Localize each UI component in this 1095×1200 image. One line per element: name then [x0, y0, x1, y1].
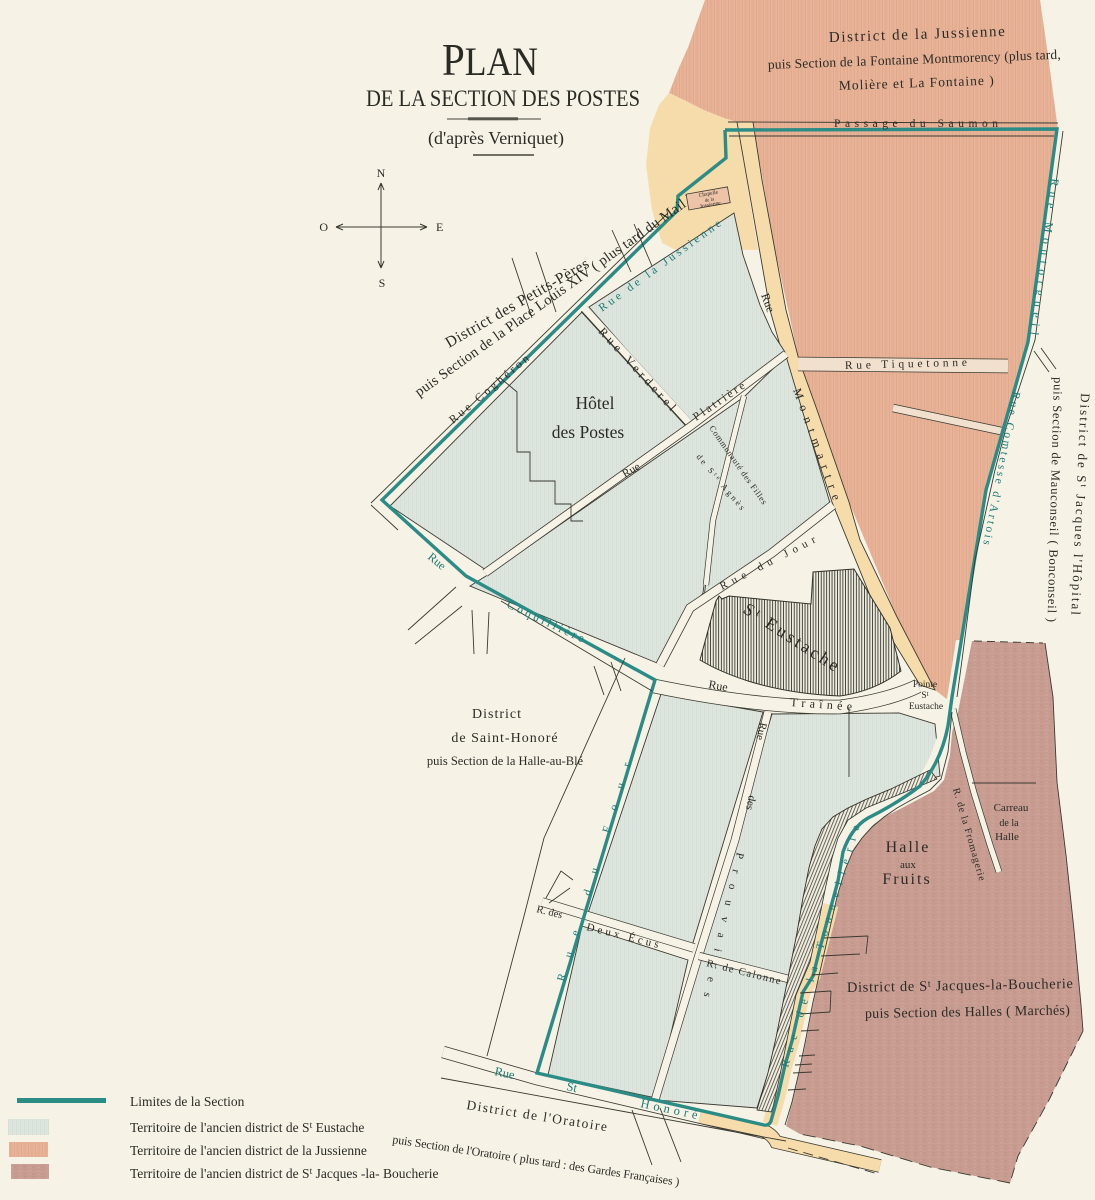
svg-text:puis Section de la Halle-au-Bl: puis Section de la Halle-au-Blé	[427, 754, 584, 768]
svg-text:Fruits: Fruits	[882, 871, 931, 888]
svg-text:des Postes: des Postes	[552, 422, 625, 442]
svg-text:Territoire de l'ancien distr: Territoire de l'ancien district de la Ju…	[130, 1143, 367, 1158]
svg-text:Pointe: Pointe	[913, 680, 937, 690]
svg-text:Hôtel: Hôtel	[576, 393, 615, 413]
svg-text:de Saint-Honoré: de Saint-Honoré	[451, 731, 558, 746]
svg-text:Territoire de l'ancien distri: Territoire de l'ancien district de St Eu…	[130, 1120, 364, 1135]
svg-text:Limites de la Section: Limites de la Section	[130, 1094, 245, 1109]
svg-text:aux: aux	[900, 859, 916, 871]
svg-text:Territoire de l'ancien distr: Territoire de l'ancien district de St Ja…	[130, 1166, 439, 1181]
svg-text:N: N	[377, 166, 386, 180]
svg-text:O: O	[319, 220, 328, 234]
svg-text:S: S	[379, 276, 386, 290]
svg-text:Eustache: Eustache	[909, 702, 943, 712]
svg-text:E: E	[436, 220, 443, 234]
svg-text:de la: de la	[999, 818, 1019, 829]
svg-text:(d'après Verniquet): (d'après Verniquet)	[428, 128, 564, 149]
svg-text:DE LA SECTION DES POSTES: DE LA SECTION DES POSTES	[366, 86, 640, 111]
svg-text:Halle: Halle	[995, 831, 1019, 843]
svg-text:Halle: Halle	[886, 839, 931, 856]
svg-text:Carreau: Carreau	[994, 802, 1029, 814]
svg-text:District: District	[472, 707, 522, 722]
svg-text:PLAN: PLAN	[442, 34, 538, 85]
